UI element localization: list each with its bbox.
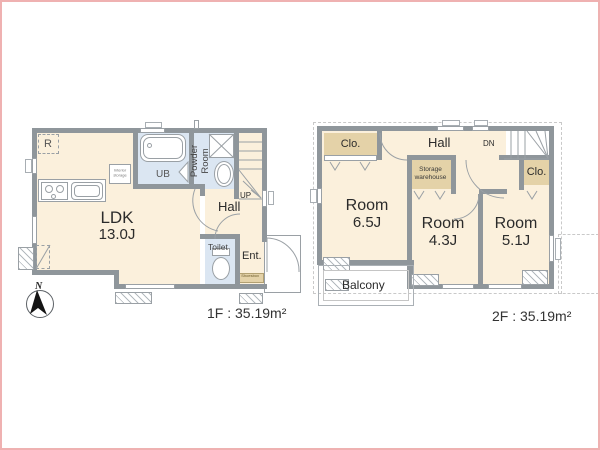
window-sill bbox=[442, 120, 460, 126]
room-a-label: Room 6.5J bbox=[332, 197, 402, 232]
roof-outline-ext bbox=[558, 234, 599, 294]
window bbox=[317, 188, 322, 204]
balcony-label: Balcony bbox=[342, 279, 385, 292]
room-b-label: Room 4.3J bbox=[408, 215, 478, 250]
compass-icon bbox=[27, 290, 54, 318]
floor1-caption: 1F : 35.19m² bbox=[207, 306, 286, 322]
room-a-name: Room bbox=[332, 197, 402, 215]
window bbox=[32, 216, 37, 244]
shoesbox-label: Shoesbox bbox=[236, 274, 264, 280]
window bbox=[125, 284, 175, 289]
bathtub-drain-icon bbox=[147, 143, 152, 148]
storage-line1: Storage bbox=[419, 166, 442, 173]
ldk-label: LDK 13.0J bbox=[72, 208, 162, 244]
window bbox=[437, 126, 464, 131]
ldk-name: LDK bbox=[72, 208, 162, 227]
window-sill bbox=[268, 191, 274, 205]
window bbox=[442, 284, 474, 289]
ldk-area: 13.0J bbox=[72, 227, 162, 244]
shutter-window bbox=[411, 274, 439, 286]
closet-b-label: Clo. bbox=[524, 166, 549, 178]
compass-north-label: N bbox=[35, 281, 42, 292]
exterior-unit bbox=[239, 293, 263, 304]
interior-storage-label: Interior storage bbox=[108, 168, 132, 179]
powder-room-label: Powder Room bbox=[189, 139, 217, 183]
stove-burner-icon bbox=[56, 185, 64, 193]
window-sill bbox=[310, 189, 317, 203]
floor2-caption: 2F : 35.19m² bbox=[492, 309, 571, 325]
storage-label: Storage warehouse bbox=[410, 166, 451, 182]
window-sill bbox=[145, 122, 162, 128]
room-a-area: 6.5J bbox=[332, 215, 402, 232]
room-b-area: 4.3J bbox=[408, 233, 478, 250]
entrance-label: Ent. bbox=[242, 250, 262, 262]
window bbox=[262, 190, 267, 207]
refrigerator-label: R bbox=[44, 138, 52, 150]
exterior-unit bbox=[18, 247, 34, 270]
stove-burner-icon bbox=[51, 194, 56, 199]
ub-label: UB bbox=[156, 169, 170, 180]
window bbox=[32, 158, 37, 174]
floor-plan-page: LDK 13.0J Hall UB Powder Room Toilet Ent… bbox=[0, 0, 600, 450]
window-sill bbox=[25, 159, 32, 173]
door-tab bbox=[194, 120, 199, 129]
room-c-label: Room 5.1J bbox=[481, 215, 551, 250]
exterior-unit-dashed bbox=[36, 245, 50, 269]
room-c-area: 5.1J bbox=[481, 233, 551, 250]
window-sill bbox=[474, 120, 488, 126]
window bbox=[472, 126, 489, 131]
closet-a-label: Clo. bbox=[324, 138, 377, 150]
powder-sink-inner bbox=[217, 164, 231, 184]
stove-burner-icon bbox=[45, 185, 53, 193]
window-sill bbox=[555, 238, 561, 260]
dn-label: DN bbox=[483, 140, 495, 149]
shutter-window bbox=[522, 270, 548, 285]
storage-line2: warehouse bbox=[415, 174, 447, 181]
window bbox=[488, 284, 522, 289]
toilet-bowl-icon bbox=[212, 257, 230, 280]
hall-1f-label: Hall bbox=[218, 200, 240, 215]
window bbox=[140, 128, 165, 133]
room-b-name: Room bbox=[408, 215, 478, 233]
exterior-unit bbox=[115, 292, 152, 304]
room-c-name: Room bbox=[481, 215, 551, 233]
hall-2f-label: Hall bbox=[428, 136, 450, 151]
toilet-label: Toilet bbox=[208, 243, 228, 253]
closet-a-sliding-door bbox=[324, 155, 377, 161]
kitchen-sink-inner bbox=[74, 185, 100, 197]
up-label: UP bbox=[240, 192, 251, 201]
porch bbox=[264, 235, 301, 293]
bathtub-inner bbox=[143, 137, 183, 159]
